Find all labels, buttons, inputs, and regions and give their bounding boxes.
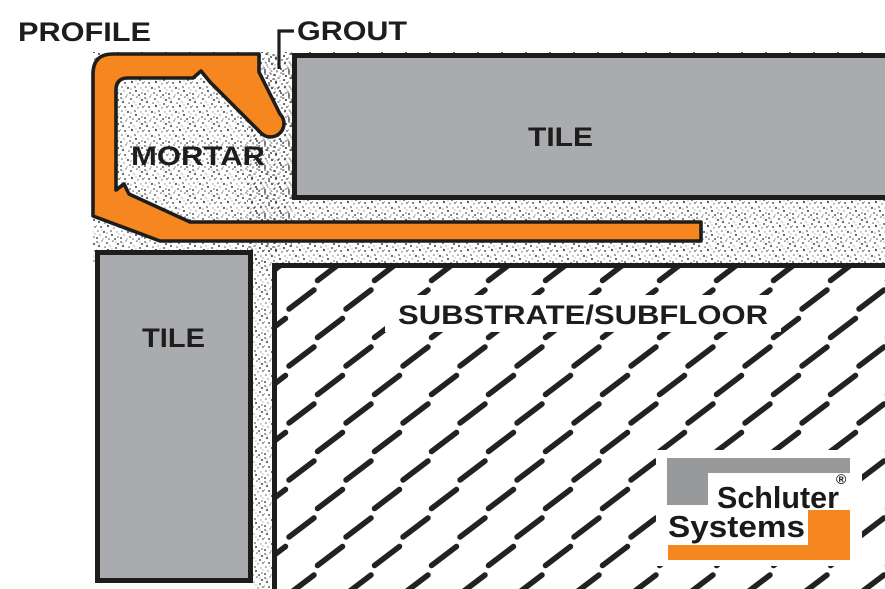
mortar-strip-vertical — [253, 250, 272, 589]
diagram-canvas: PROFILE GROUT MORTAR TILE TILE SUBSTRATE… — [0, 0, 885, 589]
mortar-label: MORTAR — [131, 141, 265, 171]
profile-installation-diagram: PROFILE GROUT MORTAR TILE TILE SUBSTRATE… — [0, 0, 885, 589]
tile-side-label: TILE — [142, 323, 205, 353]
profile-label: PROFILE — [18, 17, 151, 47]
tile-vertical — [98, 253, 251, 581]
logo-wordmark-line2: Systems — [668, 509, 805, 544]
registered-trademark-symbol: ® — [836, 471, 847, 487]
schluter-systems-logo: Schluter Systems ® — [656, 450, 862, 566]
substrate-label: SUBSTRATE/SUBFLOOR — [398, 300, 768, 330]
tile-top-label: TILE — [528, 122, 593, 152]
grout-label: GROUT — [297, 16, 408, 46]
